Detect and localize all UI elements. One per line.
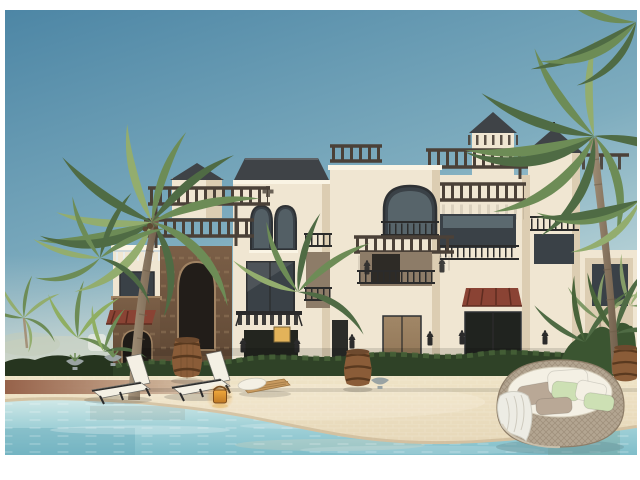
mid-villa	[328, 146, 454, 370]
villa-render-page: { "meta": { "description": "Architectura…	[0, 0, 640, 480]
barrel-3	[612, 345, 637, 381]
lit-window	[274, 327, 290, 342]
render-viewport	[5, 10, 637, 455]
floating-lantern	[206, 383, 234, 411]
tower-arch	[178, 262, 215, 350]
resort-render	[5, 10, 637, 455]
red-tile-awning	[462, 288, 522, 306]
